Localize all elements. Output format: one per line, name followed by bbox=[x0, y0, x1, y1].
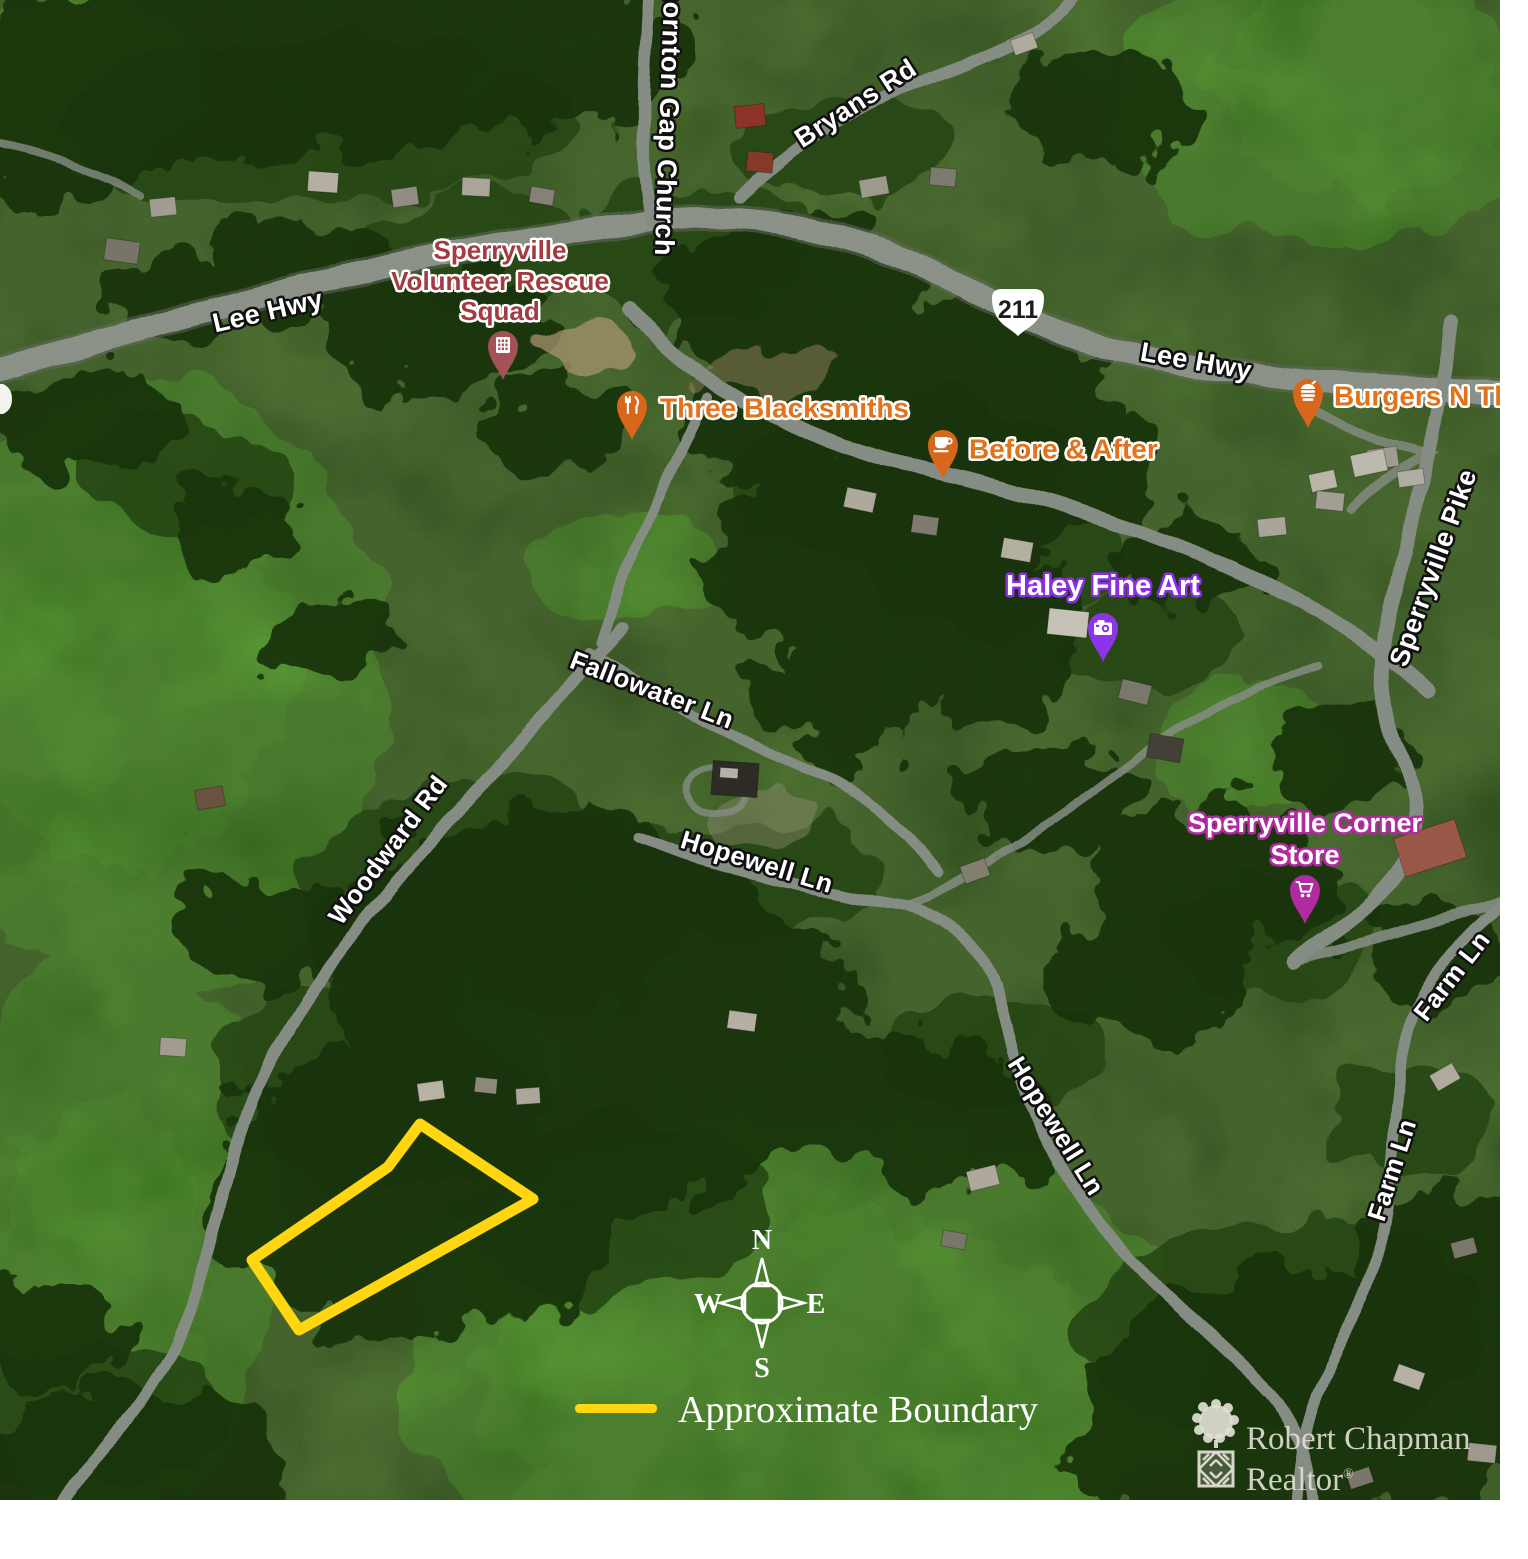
road-label: Fallowater Ln bbox=[566, 645, 738, 736]
poi-label-haley-fine-art: Haley Fine Art bbox=[1006, 569, 1200, 603]
page: 211 N S W E Lee HwyThornton Gap ChurchBr… bbox=[0, 0, 1528, 1559]
broker-title: Realtor® bbox=[1246, 1457, 1471, 1498]
poi-label-before-and-after: Before & After bbox=[969, 432, 1158, 465]
road-label: Thornton Gap Church bbox=[647, 0, 689, 257]
realtor-logo-text: Robert Chapman Realtor® bbox=[1246, 1422, 1471, 1498]
poi-label-sperryville-corner-store: Sperryville Corner Store bbox=[1188, 808, 1422, 872]
legend-label: Approximate Boundary bbox=[678, 1388, 1038, 1432]
road-label: Bryans Rd bbox=[789, 53, 923, 155]
road-label: Farm Ln bbox=[1361, 1115, 1423, 1225]
satellite-map[interactable]: 211 N S W E Lee HwyThornton Gap ChurchBr… bbox=[0, 0, 1500, 1500]
road-label: Lee Hwy bbox=[210, 284, 327, 340]
labels-layer: Lee HwyThornton Gap ChurchBryans RdLee H… bbox=[0, 0, 1500, 1500]
broker-name: Robert Chapman bbox=[1246, 1422, 1471, 1457]
poi-label-burgers-n-things: Burgers N Things bbox=[1334, 379, 1500, 412]
road-label: Lee Hwy bbox=[1138, 337, 1254, 388]
tree-icon bbox=[1192, 1399, 1239, 1448]
road-label: Hopewell Ln bbox=[677, 824, 837, 899]
realtor-logo: Robert Chapman Realtor® bbox=[1190, 1396, 1500, 1496]
realtor-logo-mark bbox=[1190, 1396, 1244, 1492]
registered-mark: ® bbox=[1343, 1467, 1354, 1482]
poi-label-sperryville-volunteer-rescue-squad: Sperryville Volunteer Rescue Squad bbox=[391, 235, 609, 327]
legend-line-sample bbox=[575, 1404, 657, 1413]
poi-label-three-blacksmiths: Three Blacksmiths bbox=[660, 391, 909, 424]
lattice-square-icon bbox=[1199, 1452, 1233, 1486]
road-label: Hopewell Ln bbox=[1001, 1051, 1110, 1201]
road-label: Woodward Rd bbox=[322, 769, 454, 930]
road-label: Farm Ln bbox=[1407, 925, 1496, 1027]
road-label: Sperryville Pike bbox=[1384, 465, 1485, 671]
